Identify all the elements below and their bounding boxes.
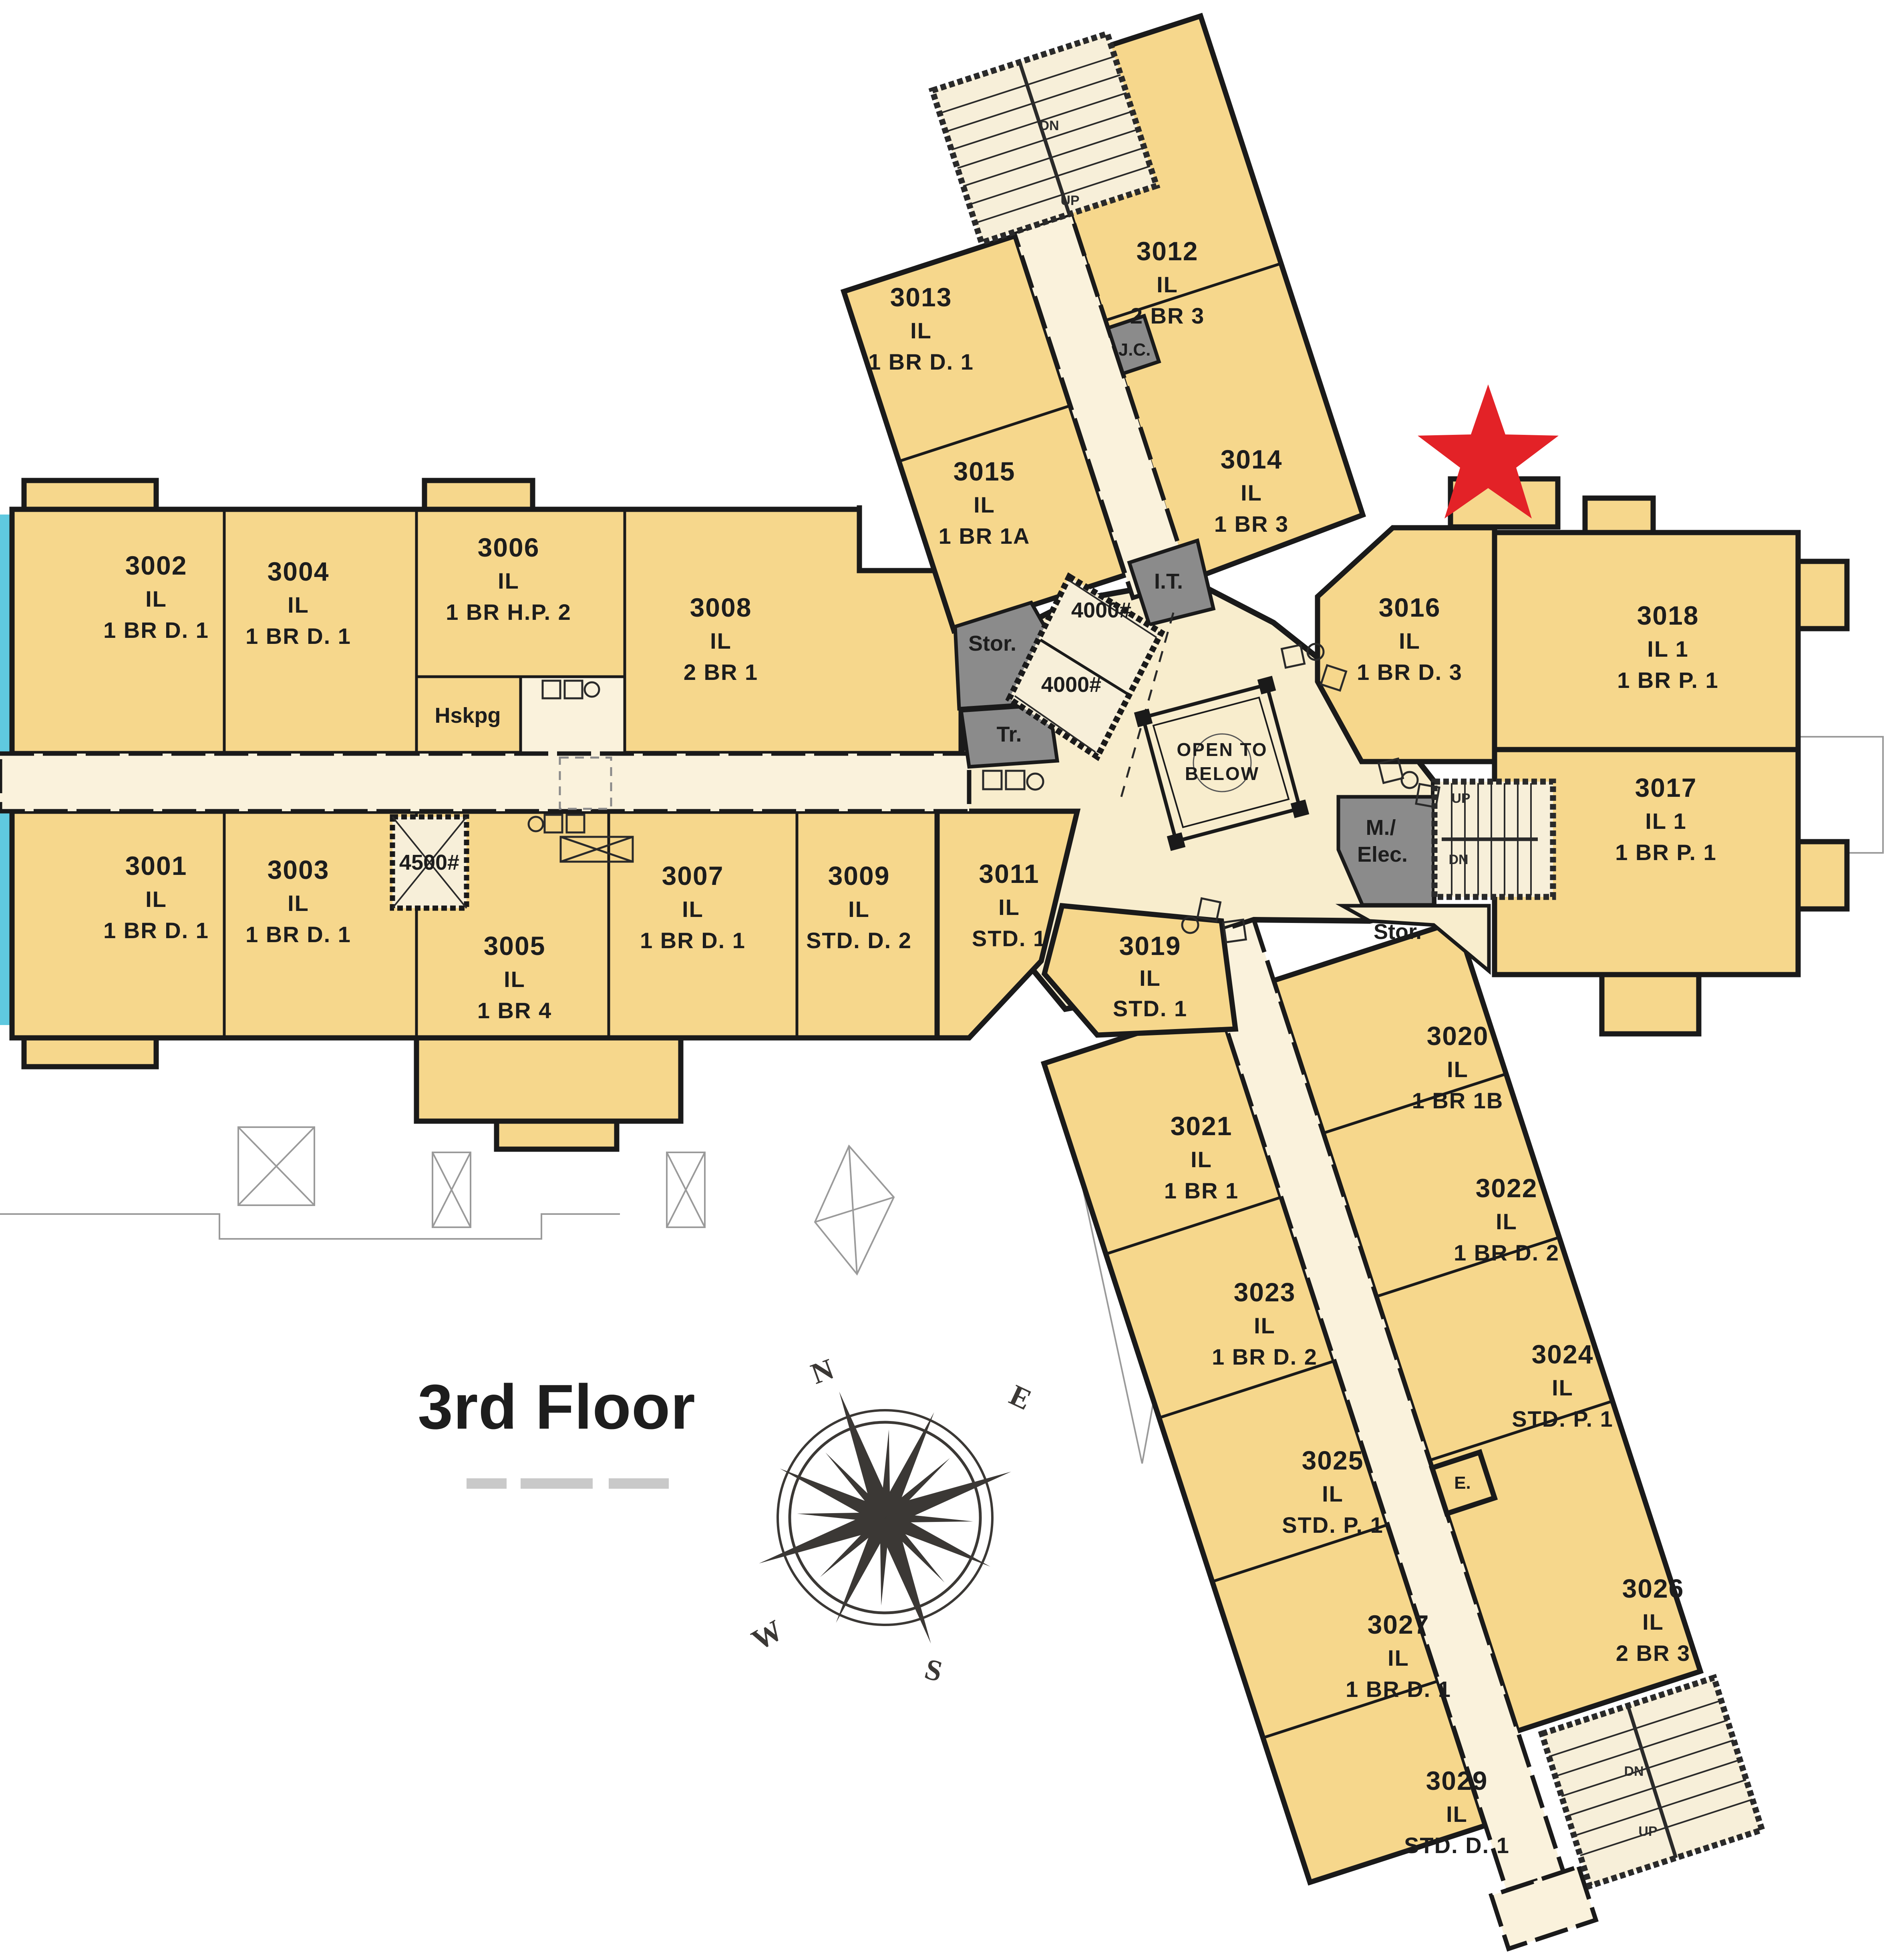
room-plan: 1 BR D. 2 [1212, 1344, 1318, 1369]
room-plan: STD. 1 [972, 926, 1046, 951]
stair-up-label: UP [1451, 791, 1470, 806]
room-plan: 1 BR H.P. 2 [446, 599, 571, 625]
stair-up-label: UP [1060, 193, 1079, 208]
room-type: IL [288, 891, 309, 916]
room-type: IL [1447, 1057, 1469, 1082]
room-number: 3003 [268, 855, 330, 885]
room-type: IL [1446, 1801, 1468, 1827]
room-type: IL [288, 592, 309, 617]
room-type: IL [145, 887, 167, 912]
room-type: IL [1399, 628, 1420, 653]
room-number: 3013 [890, 282, 952, 312]
compass-rose-icon: N E S W [713, 1346, 1057, 1690]
janitor-closet-label: J.C. [1119, 340, 1151, 360]
room-type: IL [1157, 272, 1178, 297]
room-number: 3009 [828, 861, 890, 891]
elevator-4500-label: 4500# [399, 850, 459, 874]
room-number: 3014 [1221, 444, 1283, 474]
balcony [24, 480, 156, 509]
floor-plan-canvas: 3001IL1 BR D. 1 3002IL1 BR D. 1 3003IL1 … [0, 0, 1891, 1960]
open-to-below-label: BELOW [1185, 763, 1259, 784]
room-number: 3020 [1427, 1021, 1489, 1051]
compass-north-label: N [807, 1353, 838, 1391]
room-plan: STD. P. 1 [1282, 1512, 1384, 1538]
compass-south-label: S [921, 1652, 946, 1689]
room-3018-bay [1585, 498, 1653, 533]
room-number: 3016 [1379, 593, 1441, 622]
left-wing-corridor [0, 754, 969, 811]
room-plan: 1 BR D. 2 [1454, 1240, 1559, 1265]
room-type: IL [504, 967, 525, 992]
room-number: 3023 [1234, 1277, 1296, 1307]
room-plan: 1 BR D. 1 [245, 623, 351, 649]
left-wing [0, 480, 1077, 1149]
room-plan: STD. D. 2 [806, 928, 912, 953]
room-type: IL [1552, 1375, 1573, 1400]
room-type: IL [848, 897, 870, 922]
corridor-alcove [521, 677, 625, 754]
floor-title: 3rd Floor [418, 1372, 696, 1442]
room-type: IL [1388, 1645, 1409, 1671]
room-plan: 1 BR D. 1 [1346, 1677, 1451, 1702]
room-3017-porch [1798, 842, 1847, 909]
room-plan: 1 BR D. 1 [103, 918, 209, 943]
mech-elec-label: Elec. [1357, 842, 1408, 866]
room-number: 3006 [478, 533, 540, 562]
room-plan: 1 BR D. 1 [103, 617, 209, 643]
room-plan: 1 BR 4 [477, 998, 552, 1023]
lower-wing [1044, 920, 1762, 1949]
cropped-subtitle-fragment [467, 1478, 669, 1489]
room-plan: STD. 1 [1113, 996, 1187, 1021]
room-plan: 1 BR D. 3 [1357, 659, 1463, 685]
room-number: 3026 [1622, 1574, 1684, 1603]
room-type: IL [682, 897, 704, 922]
room-plan: 1 BR P. 1 [1615, 840, 1717, 865]
room-plan: 1 BR 1A [939, 523, 1030, 549]
room-number: 3015 [954, 456, 1016, 486]
room-plan: 1 BR 1 [1164, 1178, 1239, 1203]
open-to-below-label: OPEN TO [1177, 739, 1267, 760]
stair-dn-label: DN [1039, 118, 1059, 133]
compass-east-label: E [1004, 1379, 1036, 1417]
room-number: 3017 [1635, 773, 1697, 802]
room-plan: STD. D. 1 [1404, 1833, 1510, 1858]
room-number: 3025 [1302, 1445, 1364, 1475]
room-number: 3027 [1368, 1610, 1430, 1639]
room-type: IL [998, 895, 1020, 920]
room-number: 3008 [690, 593, 752, 622]
room-type: IL [910, 318, 932, 343]
room-number: 3029 [1426, 1766, 1488, 1795]
room-plan: STD. P. 1 [1512, 1406, 1613, 1431]
room-plan: 1 BR P. 1 [1617, 667, 1719, 693]
housekeeping-label: Hskpg [435, 704, 501, 728]
room-number: 3005 [484, 931, 546, 961]
room-type: IL [710, 628, 732, 653]
room-type: IL 1 [1645, 808, 1686, 834]
room-type: IL [1642, 1609, 1664, 1634]
room-type: IL [1322, 1481, 1344, 1506]
mech-elec-label: M./ [1366, 816, 1396, 840]
room-type: IL 1 [1647, 636, 1688, 661]
room-3017-bay [1602, 975, 1699, 1034]
room-plan: 2 BR 3 [1130, 303, 1205, 328]
room-type: IL [1254, 1313, 1275, 1338]
room-plan: 2 BR 3 [1616, 1640, 1690, 1666]
elevator-4000-upper-label: 4000# [1071, 598, 1131, 622]
elevator-e-label: E. [1454, 1473, 1471, 1493]
storage-lower-label: Stor. [1374, 920, 1422, 944]
room-3005-extension [416, 1038, 681, 1121]
room-number: 3022 [1476, 1173, 1538, 1203]
elevator-4000-lower-label: 4000# [1041, 673, 1101, 697]
room-type: IL [1139, 965, 1161, 991]
room-number: 3002 [125, 551, 187, 580]
room-number: 3021 [1171, 1111, 1233, 1141]
room-type: IL [1241, 480, 1262, 505]
room-plan: 1 BR D. 1 [868, 349, 974, 374]
balcony [424, 480, 533, 509]
room-plan: 2 BR 1 [684, 659, 758, 685]
room-type: IL [1496, 1209, 1517, 1234]
compass-west-label: W [746, 1614, 788, 1657]
room-plan: 1 BR 3 [1214, 511, 1289, 537]
floor-plan-page: 3001IL1 BR D. 1 3002IL1 BR D. 1 3003IL1 … [0, 0, 1891, 1960]
room-3018-porch [1798, 561, 1847, 629]
room-number: 3018 [1637, 601, 1699, 630]
room-number: 3012 [1137, 236, 1199, 266]
room-number: 3024 [1532, 1339, 1594, 1369]
stair-up-label: UP [1638, 1824, 1657, 1839]
title-block: 3rd Floor [418, 1372, 696, 1489]
room-plan: 1 BR 1B [1412, 1088, 1504, 1113]
room-plan: 1 BR D. 1 [245, 922, 351, 947]
stair-dn-label: DN [1448, 852, 1468, 867]
room-plan: 1 BR D. 1 [640, 928, 746, 953]
room-type: IL [974, 492, 995, 517]
room-type: IL [145, 586, 167, 611]
room-3018-outline [1495, 533, 1798, 750]
room-number: 3011 [979, 859, 1039, 889]
room-type: IL [498, 568, 519, 593]
room-number: 3007 [662, 861, 724, 891]
room-number: 3001 [125, 851, 187, 880]
room-3005-bay [497, 1121, 617, 1149]
trash-label: Tr. [996, 722, 1022, 746]
balcony [24, 1038, 156, 1067]
it-label: I.T. [1154, 569, 1183, 593]
stair-dn-label: DN [1624, 1764, 1644, 1779]
room-type: IL [1191, 1147, 1212, 1172]
room-number: 3019 [1119, 931, 1181, 961]
room-number: 3004 [268, 557, 330, 586]
storage-upper-label: Stor. [968, 631, 1016, 655]
